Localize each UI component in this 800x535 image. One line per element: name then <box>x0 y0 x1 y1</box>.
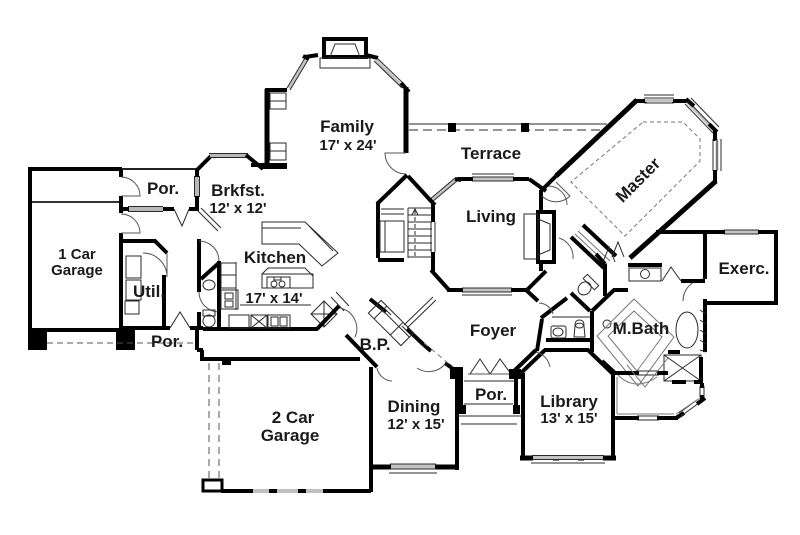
svg-text:Brkfst.: Brkfst. <box>211 181 265 200</box>
svg-text:Library: Library <box>540 392 598 411</box>
svg-text:17' x 14': 17' x 14' <box>245 290 302 307</box>
svg-text:Kitchen: Kitchen <box>244 248 306 267</box>
svg-text:Por.: Por. <box>147 179 179 198</box>
svg-text:Family: Family <box>320 117 374 136</box>
svg-text:Garage: Garage <box>51 262 103 279</box>
svg-text:13' x 15': 13' x 15' <box>540 410 597 427</box>
svg-text:Exerc.: Exerc. <box>718 259 769 278</box>
svg-text:12' x 12': 12' x 12' <box>209 200 266 217</box>
svg-text:2 Car: 2 Car <box>272 408 315 427</box>
svg-text:Por.: Por. <box>475 385 507 404</box>
svg-text:1 Car: 1 Car <box>58 246 96 263</box>
svg-text:Garage: Garage <box>261 426 320 445</box>
svg-text:Por.: Por. <box>151 332 183 351</box>
svg-text:Foyer: Foyer <box>470 321 517 340</box>
svg-text:Terrace: Terrace <box>461 144 521 163</box>
svg-text:12' x 15': 12' x 15' <box>387 416 444 433</box>
svg-text:Util.: Util. <box>133 282 165 301</box>
svg-text:Dining: Dining <box>388 397 441 416</box>
svg-text:B.P.: B.P. <box>360 335 391 354</box>
svg-text:Living: Living <box>466 207 516 226</box>
svg-text:17' x 24': 17' x 24' <box>319 137 376 154</box>
svg-text:M.Bath: M.Bath <box>613 319 670 338</box>
